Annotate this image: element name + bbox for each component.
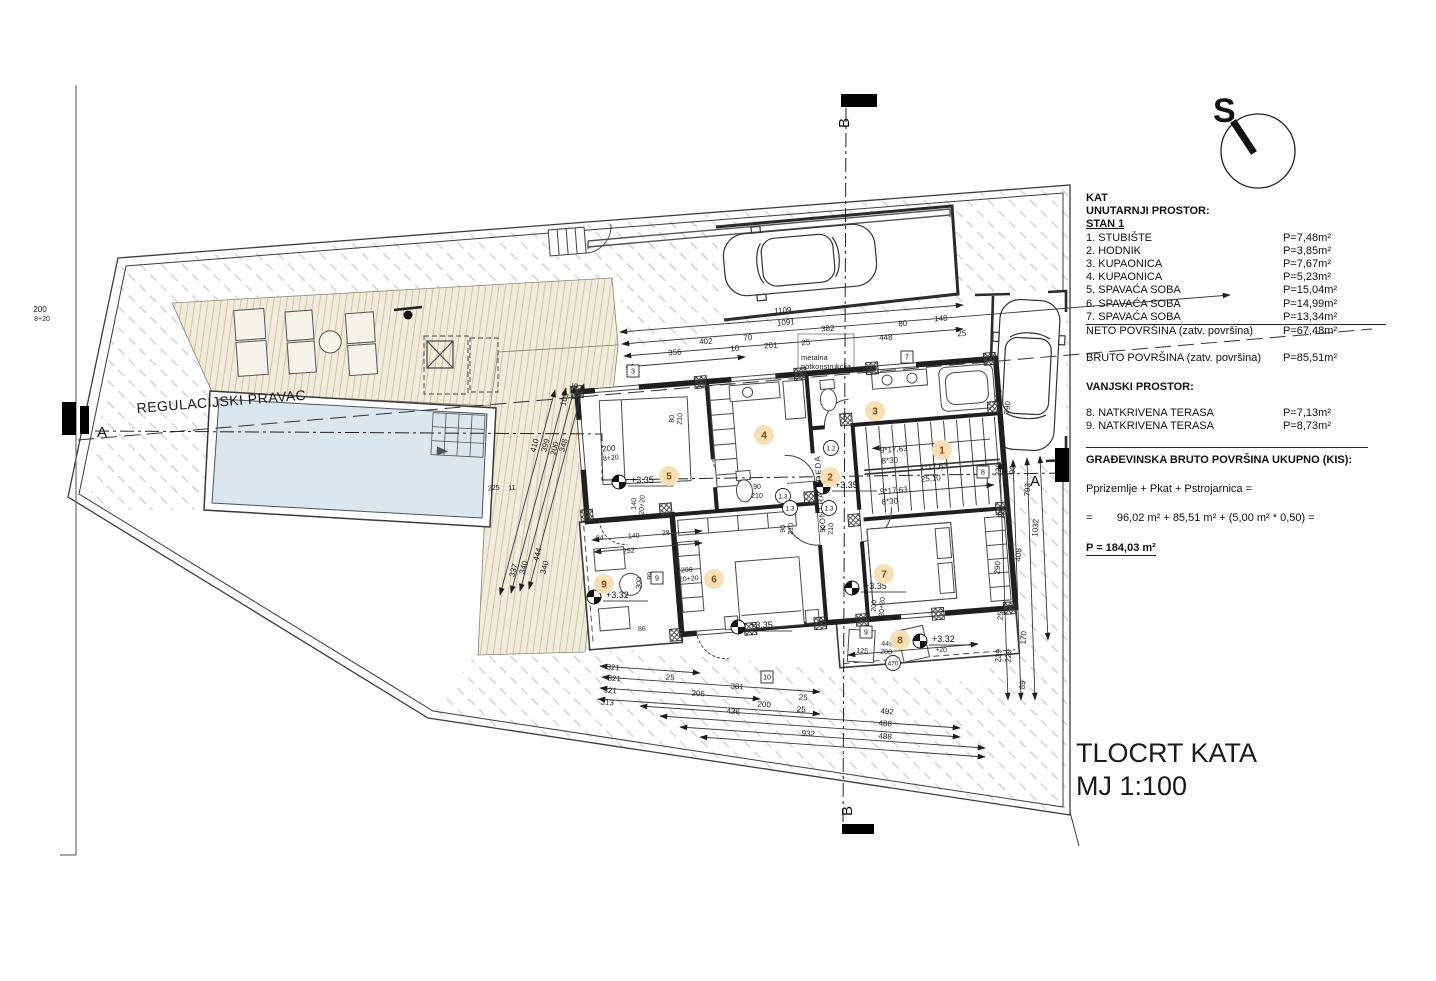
dimension-label: 382 [821, 323, 836, 333]
dimension-label: 90 [780, 525, 788, 533]
dimension-label: 25 [798, 693, 808, 703]
box-tag: 3 [627, 365, 639, 377]
dimension-label: 300 [636, 577, 644, 589]
box-tag: 10 [761, 671, 773, 683]
room-number-badge: 2 [820, 467, 840, 487]
dimension-label: 181 [994, 388, 1004, 402]
dimension-label: 25 [957, 329, 967, 339]
dimension-label: 25,10 [920, 473, 941, 484]
dimension-label: 1091 [777, 317, 796, 327]
svg-text:9: 9 [655, 576, 659, 583]
svg-text:1.2: 1.2 [826, 446, 835, 453]
svg-text:9: 9 [601, 580, 607, 591]
svg-text:5: 5 [666, 472, 672, 483]
svg-text:1: 1 [939, 446, 945, 457]
dimension-label: +20 [935, 647, 947, 655]
legend-room-row: 2. HODNIKP=3,85m² [1086, 245, 1386, 258]
dimension-label: 170 [1019, 630, 1029, 644]
room-number-badge: 9 [594, 574, 614, 594]
canopy-label-line1: metalna [801, 353, 829, 362]
floor-plan-sheet: metalna potkonstrukcija [0, 0, 1436, 981]
dimension-label: 25 [796, 705, 806, 715]
legend-exterior-row: 8. NATKRIVENA TERASAP=7,13m² [1086, 407, 1386, 420]
bed-room6 [735, 557, 804, 630]
circle-tag: 1.2 [824, 441, 839, 456]
dimension-label: 84 [596, 535, 604, 543]
dimension-label: 200 [681, 567, 693, 575]
svg-text:+3.35: +3.35 [750, 620, 773, 630]
legend-neto-row: NETO POVRŠINA (zatv. površina) P=67,48m² [1086, 325, 1386, 338]
dimension-label: 321 [606, 663, 620, 673]
dimension-label: 25 [997, 509, 1007, 519]
dimension-label: 140 [631, 498, 639, 510]
svg-text:6: 6 [711, 575, 717, 586]
dimension-label: 1032 [1030, 518, 1040, 537]
svg-text:470: 470 [888, 661, 899, 668]
dimension-label: 210 [828, 523, 836, 535]
dimension-label: 488 [878, 732, 892, 742]
room-number-badge: 7 [874, 564, 894, 584]
dimension-label: 252 [623, 548, 635, 556]
svg-text:+3.35: +3.35 [631, 475, 654, 485]
room-number-badge: 1 [932, 440, 952, 460]
legend-room-row: 7. SPAVAĆA SOBAP=13,34m² [1086, 311, 1386, 325]
svg-text:2: 2 [827, 473, 833, 484]
drawing-scale: MJ 1:100 [1076, 770, 1257, 803]
legend-formula-1: Pprizemlje + Pkat + Pstrojarnica = [1086, 483, 1386, 496]
dimension-label: 8*30 [881, 455, 899, 465]
dimension-label: 11 [508, 485, 516, 493]
title-block: TLOCRT KATA MJ 1:100 [1076, 737, 1257, 803]
dimension-label: 140 [628, 533, 640, 541]
svg-text:7: 7 [881, 570, 887, 581]
dimension-label: 80 [669, 415, 677, 423]
dimension-label: 210 [788, 523, 796, 535]
room-number-badge: 6 [704, 569, 724, 589]
svg-text:4: 4 [761, 431, 767, 442]
room-number-badge: 8 [890, 630, 910, 650]
dimension-label: 90 [820, 525, 828, 533]
dimension-label: 448 [879, 332, 894, 342]
dimension-label: 200 [757, 700, 771, 710]
cabinet-room4 [783, 380, 806, 419]
dimension-label: 210 [677, 413, 685, 425]
legend-room-row: 4. KUPAONICAP=5,23m² [1086, 271, 1386, 284]
dimension-label: 210 [751, 493, 763, 500]
svg-text:7: 7 [905, 355, 909, 362]
dimension-label: 492 [880, 707, 894, 717]
svg-text:+3.32: +3.32 [932, 634, 955, 644]
dimension-label: 25 [665, 673, 675, 683]
legend-exterior-row: 9. NATKRIVENA TERASAP=8,73m² [1086, 420, 1386, 433]
dimension-label: 70 [743, 333, 753, 343]
dimension-label: 793 [1023, 482, 1033, 496]
legend-bruto-row: BRUTO POVRŠINA (zatv. površina) P=85,51m… [1086, 352, 1386, 365]
dimension-label: 313 [600, 698, 614, 708]
dimension-label: 90 [753, 484, 761, 491]
dimension-label: 8+20 [34, 316, 50, 323]
circle-tag: 1.3 [783, 501, 798, 516]
svg-text:9: 9 [864, 630, 868, 637]
svg-text:3: 3 [872, 407, 878, 418]
dimension-label: 790 [1003, 400, 1013, 414]
dimension-label: 229 [1004, 648, 1014, 662]
box-tag: 9 [860, 626, 872, 638]
legend-divider [1086, 447, 1368, 448]
dimension-label: 89 [1018, 680, 1028, 690]
dimension-label: 206 [691, 689, 705, 699]
room-number-badge: 3 [865, 401, 885, 421]
dimension-label: 225 [488, 485, 500, 493]
legend-room-rows: 1. STUBIŠTEP=7,48m²2. HODNIKP=3,85m²3. K… [1086, 232, 1386, 325]
room-number-badge: 5 [659, 466, 679, 486]
legend-exterior-rows: 8. NATKRIVENA TERASAP=7,13m²9. NATKRIVEN… [1086, 407, 1386, 433]
dimension-label: 321 [607, 674, 621, 684]
north-compass: S [1213, 92, 1295, 188]
section-letter-a-left: A [97, 424, 107, 441]
dimension-label: 201 [764, 340, 779, 350]
svg-text:10: 10 [763, 675, 771, 682]
dimension-label: 220 [994, 462, 1004, 476]
legend-total-header: GRAĐEVINSKA BRUTO POVRŠINA UKUPNO (KIS): [1086, 454, 1386, 467]
legend-room-row: 1. STUBIŠTEP=7,48m² [1086, 232, 1386, 245]
dimension-label: 25 [996, 611, 1006, 621]
compass-letter: S [1213, 92, 1236, 130]
dimension-label: 80 [898, 319, 908, 329]
circle-tag: 1.3 [822, 501, 837, 516]
dimension-label: 200 [33, 305, 47, 314]
legend-room-row: 3. KUPAONICAP=7,67m² [1086, 258, 1386, 271]
svg-text:1.3: 1.3 [824, 506, 833, 513]
legend-unit: STAN 1 [1086, 218, 1386, 231]
dimension-label: 932 [801, 729, 815, 739]
dimension-label: 321 [603, 686, 617, 696]
circle-tag: 470 [886, 656, 901, 671]
dimension-label: 28 [662, 530, 670, 538]
legend-total: P = 184,03 m² [1086, 542, 1156, 556]
svg-text:1.3: 1.3 [778, 494, 787, 501]
dimension-label: 25 [801, 338, 811, 348]
svg-text:3: 3 [631, 369, 635, 376]
dimension-label: 90 [1008, 465, 1018, 475]
room-number-badge: 4 [754, 425, 774, 445]
dimension-label: 381 [730, 682, 744, 692]
dimension-label: 86 [638, 626, 646, 634]
section-letter-b-bottom: B [839, 806, 856, 816]
dimension-label: 148 [934, 313, 949, 323]
box-tag: 9 [651, 572, 663, 584]
legend-exterior-header: VANJSKI PROSTOR: [1086, 381, 1386, 394]
svg-text:8: 8 [897, 636, 903, 647]
legend-floor: KAT [1086, 192, 1386, 205]
legend-room-row: 6. SPAVAĆA SOBAP=14,99m² [1086, 298, 1386, 311]
dimension-label: 200 [602, 443, 617, 453]
dimension-label: 436 [726, 707, 740, 717]
dimension-label: 356 [668, 347, 683, 357]
swimming-pool [204, 391, 496, 527]
dimension-label: 200 [880, 649, 892, 657]
dimension-label: 290 [993, 560, 1003, 574]
dimension-label: 10 [730, 344, 740, 354]
legend-room-row: 5. SPAVAĆA SOBAP=15,04m² [1086, 284, 1386, 297]
svg-text:1.3: 1.3 [785, 506, 794, 513]
legend-formula-2: = 96,02 m² + 85,51 m² + (5,00 m² * 0,50)… [1086, 512, 1386, 525]
svg-text:8: 8 [981, 470, 985, 477]
dimension-label: 408 [1014, 547, 1024, 561]
dimension-label: 239 [994, 648, 1004, 662]
dimension-label: 200 [871, 600, 879, 612]
drawing-title: TLOCRT KATA [1076, 737, 1257, 770]
dimension-label: 8*30 [881, 496, 899, 506]
dimension-label: 488 [878, 719, 892, 729]
box-tag: 7 [901, 351, 913, 363]
legend-interior-header: UNUTARNJI PROSTOR: [1086, 205, 1386, 218]
dimension-label: 402 [699, 336, 714, 346]
dimension-label: 125 [856, 648, 868, 656]
box-tag: 8 [977, 466, 989, 478]
dimension-label: 8+20 [603, 454, 619, 462]
bath-counter-room4 [729, 382, 780, 402]
section-letter-b-top: B [836, 118, 853, 128]
area-legend: KAT UNUTARNJI PROSTOR: STAN 1 1. STUBIŠT… [1086, 192, 1386, 556]
dimension-label: 1109 [774, 305, 792, 315]
